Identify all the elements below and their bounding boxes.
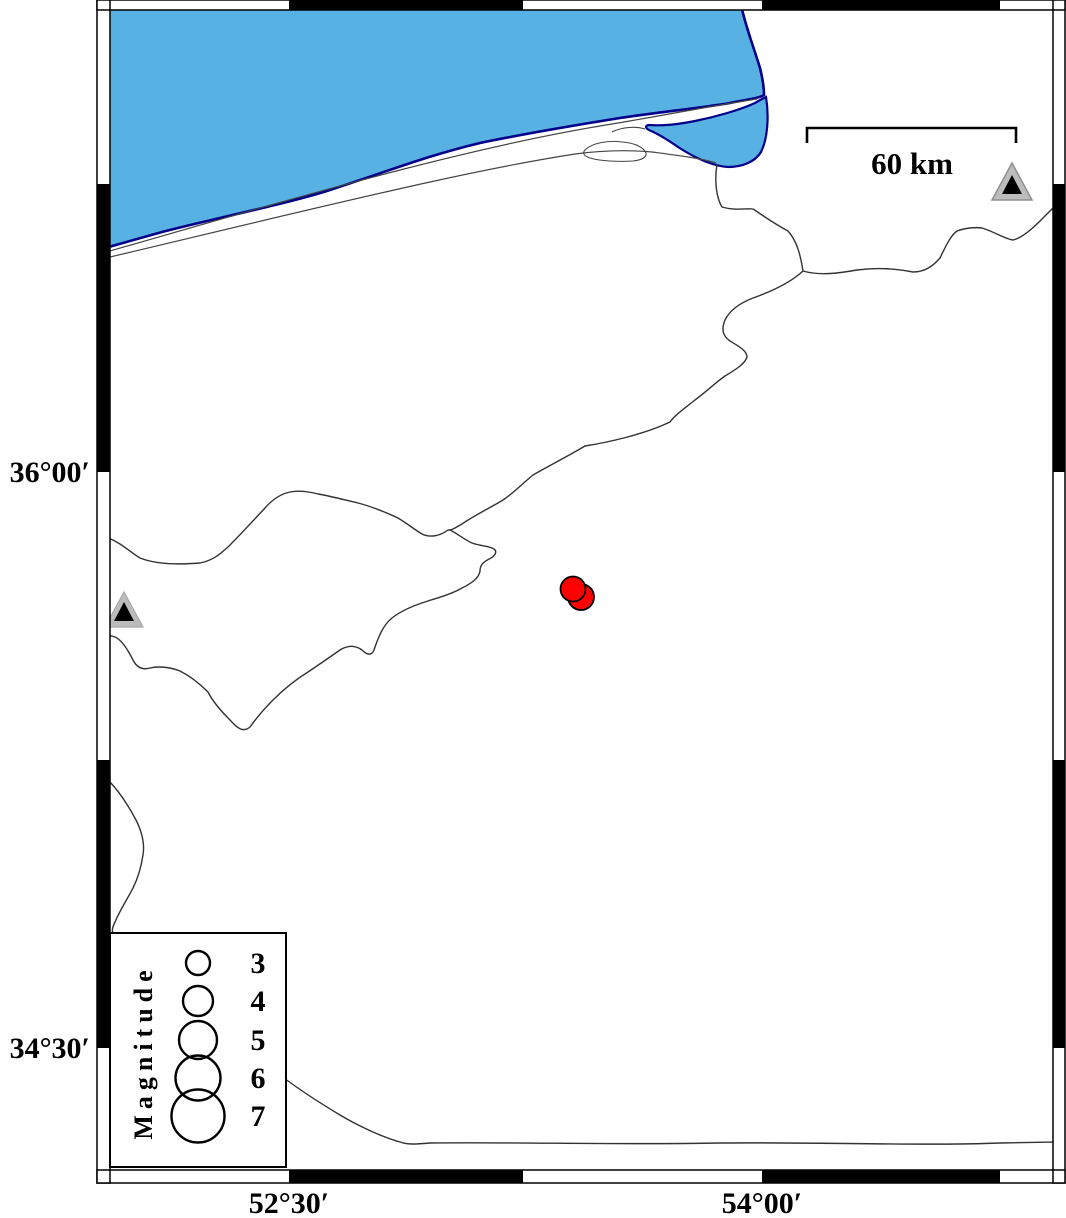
central-region-contour	[108, 491, 496, 729]
scale-bar: 60 km	[807, 128, 1016, 181]
southern-boundary-line	[284, 1078, 1056, 1144]
frame-corner	[1053, 0, 1065, 10]
frame-corner	[1053, 1170, 1065, 1183]
scale-bar-label: 60 km	[871, 146, 953, 181]
seismicity-map-figure: 60 km Magnitude 3 4 5 6 7	[0, 0, 1066, 1218]
legend-label-m4: 4	[251, 985, 266, 1018]
border-line-southwest	[450, 271, 803, 530]
lat-label-36-00: 36°00′	[10, 456, 90, 489]
legend-title: Magnitude	[129, 964, 158, 1139]
legend-label-m6: 6	[251, 1062, 266, 1095]
frame-seg	[97, 760, 110, 1048]
earthquake-events	[561, 577, 595, 611]
frame-corner	[97, 1170, 110, 1183]
border-line-bay-to-junction	[716, 164, 803, 271]
lat-label-34-30: 34°30′	[10, 1032, 90, 1065]
frame-seg	[762, 1170, 1000, 1183]
frame-seg	[1053, 760, 1065, 1048]
legend-label-m7: 7	[251, 1100, 266, 1133]
legend-label-m5: 5	[251, 1024, 266, 1057]
frame-seg	[762, 0, 1000, 10]
map-canvas: 60 km Magnitude 3 4 5 6 7	[0, 0, 1066, 1218]
event-circle-1	[561, 577, 586, 602]
frame-corner	[97, 0, 110, 10]
frame-seg	[97, 184, 110, 472]
border-line-east	[803, 205, 1056, 274]
magnitude-legend: Magnitude 3 4 5 6 7	[110, 933, 286, 1167]
station-marker-east	[992, 163, 1032, 200]
southwest-river-line	[108, 780, 144, 934]
spit-detail-line	[612, 127, 645, 132]
legend-label-m3: 3	[251, 947, 266, 980]
lon-label-54-00: 54°00′	[722, 1187, 802, 1218]
frame-seg	[289, 1170, 523, 1183]
lon-label-52-30: 52°30′	[249, 1187, 329, 1218]
frame-seg	[1053, 184, 1065, 472]
frame-seg	[289, 0, 523, 10]
